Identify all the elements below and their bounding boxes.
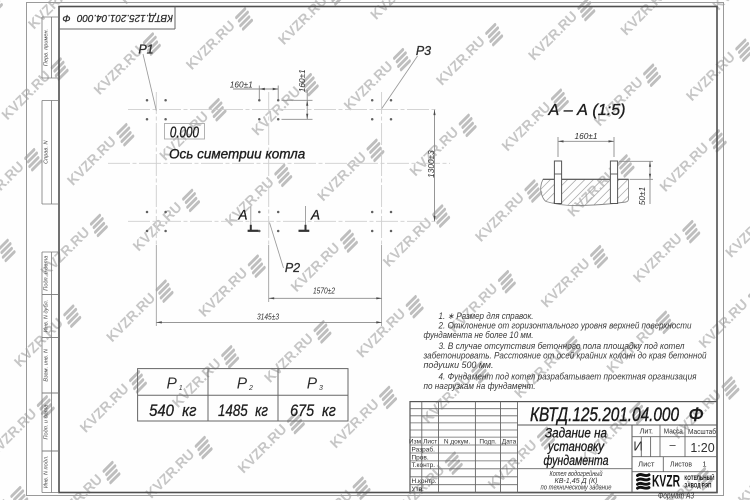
svg-text:675 кг: 675 кг <box>290 401 336 420</box>
svg-text:установку: установку <box>547 439 605 454</box>
svg-text:1300±3: 1300±3 <box>426 150 436 178</box>
svg-text:50±1: 50±1 <box>637 187 647 205</box>
svg-text:Перв. примен.: Перв. примен. <box>44 29 50 66</box>
svg-text:160±1: 160±1 <box>297 69 307 92</box>
svg-text:Инв. N дубл.: Инв. N дубл. <box>44 300 50 332</box>
svg-text:Подп. и дата: Подп. и дата <box>44 404 50 439</box>
svg-text:A: A <box>310 208 320 223</box>
svg-text:ЗАВОД РЭП: ЗАВОД РЭП <box>684 483 711 490</box>
svg-text:КОТЕЛЬНЫЙ: КОТЕЛЬНЫЙ <box>684 473 714 482</box>
svg-text:забетонировать. Расстояние от: забетонировать. Расстояние от осей крайн… <box>423 351 707 361</box>
svg-text:1: 1 <box>702 460 706 469</box>
svg-text:160±1: 160±1 <box>230 79 253 89</box>
svg-text:Подп.: Подп. <box>479 438 496 445</box>
svg-text:Дата: Дата <box>502 438 517 445</box>
svg-text:по нагрузкам на фундамент.: по нагрузкам на фундамент. <box>424 381 536 391</box>
svg-text:P1: P1 <box>138 43 153 57</box>
svg-text:Подп. и дата: Подп. и дата <box>44 256 50 291</box>
svg-text:Масштаб: Масштаб <box>688 427 716 436</box>
svg-text:Котел водогрейный: Котел водогрейный <box>550 470 603 478</box>
svg-text:3. В случае отсутствия бетонно: 3. В случае отсутствия бетонного пола пл… <box>439 341 685 351</box>
svg-text:N докум.: N докум. <box>444 438 470 445</box>
svg-text:A: A <box>237 208 247 223</box>
svg-text:Лист: Лист <box>423 438 437 445</box>
svg-text:Ф: Ф <box>62 12 70 23</box>
svg-text:4. Фундамент под котел разраба: 4. Фундамент под котел разрабатывает про… <box>439 372 697 382</box>
svg-text:Справ. N: Справ. N <box>44 140 50 164</box>
svg-text:подушки 500 мм.: подушки 500 мм. <box>424 360 494 370</box>
svg-text:160±1: 160±1 <box>574 131 597 141</box>
svg-text:КВТД.125.201.04.000: КВТД.125.201.04.000 <box>530 405 679 426</box>
svg-text:Лит.: Лит. <box>640 427 653 436</box>
svg-text:Взам. инв. N: Взам. инв. N <box>44 348 50 382</box>
svg-text:1:20: 1:20 <box>690 441 714 455</box>
svg-text:540 кг: 540 кг <box>149 401 196 420</box>
svg-text:P2: P2 <box>285 261 300 275</box>
svg-text:Лист: Лист <box>638 460 655 469</box>
svg-text:KVZR: KVZR <box>652 472 680 491</box>
svg-text:Масса: Масса <box>664 427 684 436</box>
svg-text:Инв. N подл.: Инв. N подл. <box>44 455 50 488</box>
svg-text:фундамента: фундамента <box>544 453 609 468</box>
svg-text:3145±3: 3145±3 <box>257 312 279 322</box>
svg-text:1485 кг: 1485 кг <box>218 401 268 420</box>
svg-text:Ф: Ф <box>688 405 703 426</box>
svg-text:Н.контр.: Н.контр. <box>412 478 437 485</box>
svg-text:1. ∗ Размер для справок.: 1. ∗ Размер для справок. <box>439 311 534 321</box>
svg-text:Ось симетрии котла: Ось симетрии котла <box>169 147 306 162</box>
svg-text:Утв.: Утв. <box>412 486 425 493</box>
svg-text:Формат А3: Формат А3 <box>658 490 694 500</box>
svg-text:А – А (1:5): А – А (1:5) <box>547 102 625 119</box>
svg-text:1570±2: 1570±2 <box>313 286 335 296</box>
svg-text:P3: P3 <box>416 44 431 58</box>
svg-text:–: – <box>669 440 676 452</box>
svg-text:Листов: Листов <box>670 460 692 469</box>
svg-text:2. Отклонение от горизонтально: 2. Отклонение от горизонтального уровня … <box>438 321 692 331</box>
svg-text:Разраб.: Разраб. <box>412 445 436 453</box>
svg-text:0.000: 0.000 <box>170 125 199 142</box>
svg-text:Пров.: Пров. <box>412 454 429 461</box>
svg-text:фундамента не более 10 мм.: фундамента не более 10 мм. <box>424 330 534 340</box>
svg-text:И: И <box>633 439 642 454</box>
svg-text:Т.контр.: Т.контр. <box>412 462 436 469</box>
svg-text:по техническому задание: по техническому задание <box>541 484 612 492</box>
svg-text:КВТД.125.201.04.000: КВТД.125.201.04.000 <box>77 12 173 23</box>
svg-text:Изм.: Изм. <box>409 438 423 445</box>
